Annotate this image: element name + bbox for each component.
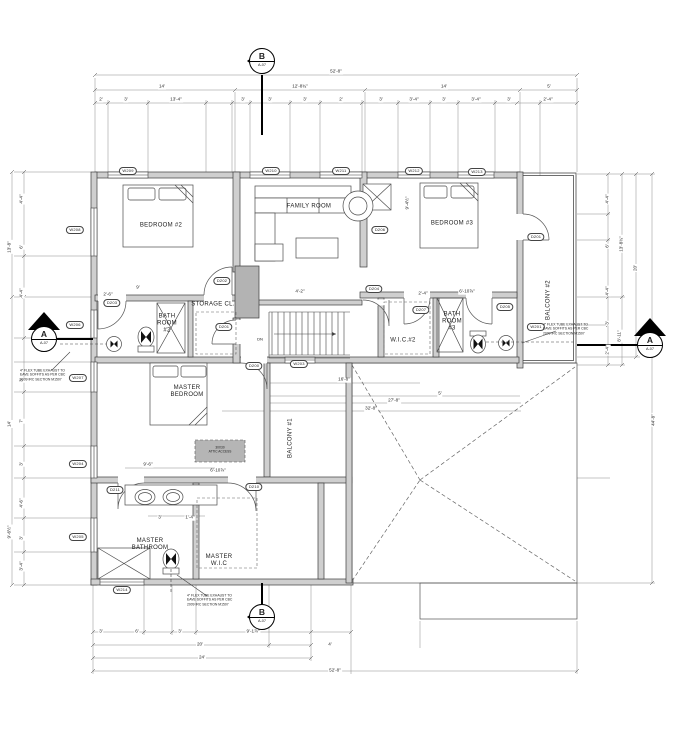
section-letter: B [259,608,265,617]
section-marker-b-top: BA-07 [249,48,275,74]
dim-label: 1'-4" [184,516,195,521]
dim-label: 13'-8¾" [620,235,625,253]
room-label-bath-room-2: BATH ROOM #2 [157,314,177,335]
room-label-master-bedroom: MASTER BEDROOM [170,385,203,399]
window-tag-w212: W212 [405,167,423,175]
dim-label: 4'-4" [606,285,611,296]
dim-label: 32'-8" [364,407,378,412]
dim-label: 5' [546,85,551,90]
attic-access-label: 30X30 ATTIC ACCESS [209,446,232,453]
dim-label: 3'-4" [470,98,481,103]
room-label-storage-closet: STORAGE CL. [191,302,235,309]
dim-label: 14' [8,420,13,428]
window-tag-w213: W213 [468,168,486,176]
room-label-wic-2: W.I.C.#2 [390,338,415,345]
door-tag-d200: D200 [245,362,262,370]
sheet-reference: A-07 [258,64,266,68]
dim-label: 6' [20,244,25,249]
room-label-balcony-2: BALCONY #2 [546,280,553,320]
window-tag-w205: W205 [69,533,87,541]
dim-label: 3' [157,516,162,521]
door-tag-d206: D206 [371,226,388,234]
marker-divider [638,345,662,346]
section-marker-a-right: AA-07 [637,332,663,358]
dim-label: 44'-8" [652,413,657,427]
dim-label: 6'-10⅞" [458,290,476,295]
window-tag-w206: W206 [66,321,84,329]
dim-label: 3' [606,320,611,325]
dim-label: 3' [20,461,25,466]
dim-label: 2'-4" [542,98,553,103]
dim-label: 4'-4" [606,193,611,204]
dim-label: 3'-4" [20,560,25,571]
window-tag-w209: W209 [119,167,137,175]
dim-label: 3'-4" [408,98,419,103]
door-tag-d203: D203 [103,299,120,307]
sheet-reference: A-07 [646,348,654,352]
dim-label: 9'-1⅞" [246,630,261,635]
dim-label: 20' [634,264,639,272]
door-tag-d205: D205 [496,303,513,311]
dim-label: 3' [378,98,383,103]
room-label-bedroom-2: BEDROOM #2 [140,223,182,230]
door-tag-d210: D210 [245,483,262,491]
stair-dn-label: DN [257,338,263,343]
dim-label: 6' [134,630,139,635]
window-tag-w214: W214 [113,586,131,594]
dim-label: 4'-4" [20,287,25,298]
dim-label: 3' [441,98,446,103]
window-tag-w204: W204 [69,460,87,468]
dim-label: 3' [506,98,511,103]
section-marker-b-bottom: BA-07 [249,604,275,630]
dim-label: 13'-8" [8,240,13,254]
dim-label: 9' [135,286,140,291]
door-tag-d201-balcony: D201 [527,233,544,241]
floor-plan-sheet: BEDROOM #2FAMILY ROOMBEDROOM #3BALCONY #… [0,0,675,744]
dim-label: 27'-8" [387,399,401,404]
marker-divider [250,617,274,618]
dim-label: 52'-8" [329,70,343,75]
dim-label: 9'-4½" [406,196,411,211]
door-tag-d204: D204 [365,285,382,293]
dim-label: 2'-4" [606,344,611,355]
dim-label: 2'-6" [102,293,113,298]
dim-label: 3' [267,98,272,103]
door-tag-d202: D202 [213,277,230,285]
dim-label: 9'-6½" [8,525,13,540]
dim-label: 9'-6" [142,463,153,468]
room-label-family-room: FAMILY ROOM [287,204,331,211]
door-tag-d211: D211 [106,486,123,494]
sheet-reference: A-07 [40,342,48,346]
dim-label: 14' [158,85,166,90]
dim-label: 6' [606,243,611,248]
dim-label: 2'-4" [417,292,428,297]
room-label-bedroom-3: BEDROOM #3 [431,221,473,228]
marker-divider [250,61,274,62]
section-letter: A [647,336,653,345]
dim-label: 4'-2" [294,290,305,295]
dim-label: 20' [196,643,204,648]
dim-label: 3' [240,98,245,103]
window-tag-w208: W208 [66,226,84,234]
window-tag-w210: W210 [262,167,280,175]
dim-label: 3' [123,98,128,103]
room-label-balcony-1: BALCONY #1 [288,418,295,458]
exhaust-note-bottom: 4" FLEX TUBE EXHAUST TO EAVE SOFFITS AS … [187,594,241,607]
dim-label: 6'-10⅞" [209,469,227,474]
section-letter: A [41,330,47,339]
dim-label: 4'-6" [20,497,25,508]
dim-label: 3' [20,535,25,540]
door-tag-d201: D201 [215,323,232,331]
dim-label: 3' [177,630,182,635]
dim-label: 12'-8¾" [291,85,309,90]
room-label-master-wic: MASTER W.I.C [206,554,233,568]
dim-label: 13'-4" [169,98,183,103]
dim-label: 24' [198,656,206,661]
marker-divider [32,339,56,340]
section-letter: B [259,52,265,61]
room-label-master-bathroom: MASTER BATHROOM [132,538,169,552]
dim-label: 3' [98,630,103,635]
door-tag-d207: D207 [412,306,429,314]
dim-label: 4'-4" [20,193,25,204]
dim-label: 52'-8" [328,669,342,674]
exhaust-note-right: 4" FLEX TUBE EXHAUST TO EAVE SOFFITS AS … [543,323,597,336]
dim-label: 3' [302,98,307,103]
dim-label: 5' [437,392,442,397]
dim-label: 2' [338,98,343,103]
dim-label: 16'-8" [337,378,351,383]
window-tag-w211: W211 [332,167,350,175]
dim-label: 2' [98,98,103,103]
section-marker-a-left: AA-07 [31,326,57,352]
sheet-reference: A-07 [258,620,266,624]
dim-label: 8'-11" [618,329,623,342]
dim-label: 7' [20,418,25,423]
dim-label: 4' [327,643,332,648]
annotation-overlay: BEDROOM #2FAMILY ROOMBEDROOM #3BALCONY #… [0,0,675,744]
window-tag-w203: W203 [290,360,308,368]
exhaust-note-left: 4" FLEX TUBE EXHAUST TO EAVE SOFFITS AS … [20,369,74,382]
dim-label: 14' [440,85,448,90]
room-label-bath-room-3: BATH ROOM #3 [442,312,462,333]
